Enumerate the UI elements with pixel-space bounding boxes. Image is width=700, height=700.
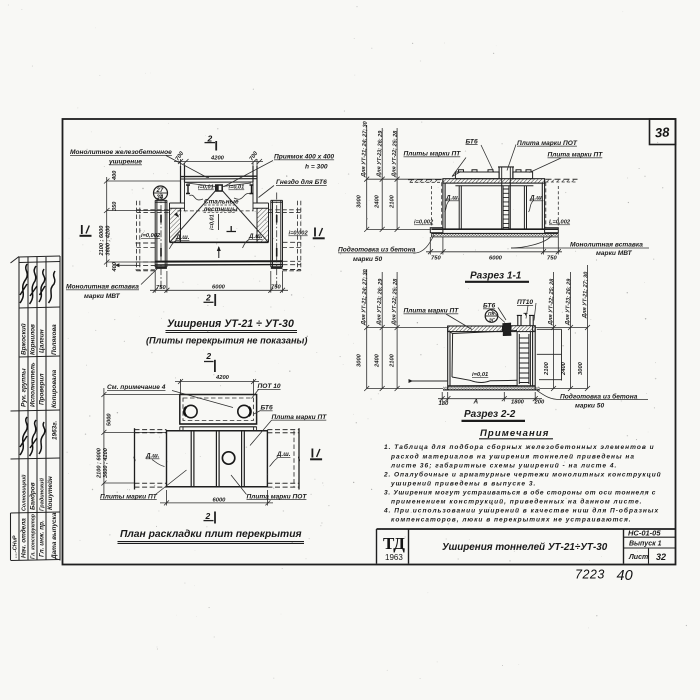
svg-text:2100: 2100 xyxy=(390,194,396,209)
svg-text:ПОТ 10: ПОТ 10 xyxy=(258,383,281,390)
svg-text:Монолитная вставка: Монолитная вставка xyxy=(570,242,643,249)
svg-text:Д.ш.: Д.ш. xyxy=(145,453,160,460)
svg-text:Лист: Лист xyxy=(628,554,648,561)
svg-text:марки 50: марки 50 xyxy=(575,403,604,410)
svg-text:Вржоский: Вржоский xyxy=(20,323,28,355)
svg-text:400: 400 xyxy=(112,261,118,272)
svg-text:1963: 1963 xyxy=(385,553,403,562)
svg-text:См. примечание 4: См. примечание 4 xyxy=(107,384,166,391)
svg-text:Солновицкий: Солновицкий xyxy=(21,474,28,511)
svg-text:Рук. группы: Рук. группы xyxy=(21,368,28,407)
svg-text:2: 2 xyxy=(205,293,211,303)
svg-text:ПТ10: ПТ10 xyxy=(517,299,533,306)
svg-text:350: 350 xyxy=(112,201,118,211)
svg-text:Д.ш.: Д.ш. xyxy=(445,195,460,202)
svg-text:4200: 4200 xyxy=(215,375,230,381)
svg-text:2100: 2100 xyxy=(390,353,396,368)
svg-text:НС-01-05: НС-01-05 xyxy=(628,529,661,538)
svg-text:Полякова: Полякова xyxy=(51,324,58,355)
svg-text:Разрез 1-1: Разрез 1-1 xyxy=(470,271,522,282)
svg-text:2400: 2400 xyxy=(561,361,567,376)
svg-text:38: 38 xyxy=(654,124,670,140)
svg-text:750: 750 xyxy=(271,285,281,291)
svg-text:Проверил: Проверил xyxy=(39,374,46,405)
svg-text:ПК: ПК xyxy=(488,311,495,317)
svg-text:2: 2 xyxy=(207,134,213,144)
svg-text:Копировала: Копировала xyxy=(51,369,58,408)
svg-text:3000: 3000 xyxy=(578,361,584,375)
svg-text:уширение: уширение xyxy=(108,159,142,166)
svg-text:i=0,002: i=0,002 xyxy=(141,233,161,239)
svg-text:компенсаторов, люки в перек: компенсаторов, люки в перекрытиях не уст… xyxy=(391,517,632,524)
svg-text:Приямок 400 х 400: Приямок 400 х 400 xyxy=(274,154,334,161)
svg-text:4. При использовании уширени: 4. При использовании уширений в качестве… xyxy=(383,507,659,515)
svg-text:Плита марки ПТ: Плита марки ПТ xyxy=(404,308,460,315)
svg-text:2400: 2400 xyxy=(375,194,381,209)
svg-text:32: 32 xyxy=(656,552,666,562)
svg-text:Д.ш.: Д.ш. xyxy=(529,195,544,202)
svg-text:марки МВТ: марки МВТ xyxy=(84,293,121,300)
svg-text:7223: 7223 xyxy=(575,568,605,582)
svg-text:Гл. конструктор: Гл. конструктор xyxy=(31,514,37,559)
svg-text:Плита марки ПОТ: Плита марки ПОТ xyxy=(247,493,308,500)
svg-text:марки 50: марки 50 xyxy=(353,256,382,263)
svg-text:Разрез 2-2: Разрез 2-2 xyxy=(464,409,516,420)
svg-text:применением конструкций, при: применением конструкций, приведенных на … xyxy=(391,498,642,506)
svg-text:БТ6: БТ6 xyxy=(466,138,478,145)
svg-text:листе 36; габаритные схемы: листе 36; габаритные схемы уширений - на… xyxy=(390,462,617,470)
svg-text:40: 40 xyxy=(617,568,633,584)
svg-text:Цалгин: Цалгин xyxy=(39,329,46,353)
svg-text:ТД: ТД xyxy=(383,534,405,553)
svg-text:180: 180 xyxy=(439,401,449,407)
svg-text:Плита марки ПТ: Плита марки ПТ xyxy=(272,414,328,421)
svg-text:6000: 6000 xyxy=(212,285,226,291)
svg-text:Плита марки ПТ: Плита марки ПТ xyxy=(548,152,604,159)
svg-text:Д.ш.: Д.ш. xyxy=(276,451,291,458)
svg-text:3600 ; 4200: 3600 ; 4200 xyxy=(106,225,112,256)
svg-text:БТ6: БТ6 xyxy=(483,303,495,310)
svg-text:5000: 5000 xyxy=(107,413,113,426)
svg-text:750: 750 xyxy=(431,256,441,262)
svg-text:3000: 3000 xyxy=(357,194,363,208)
svg-text:А: А xyxy=(473,399,479,406)
svg-text:марки МВТ: марки МВТ xyxy=(596,250,633,257)
svg-text:Плиты марки ПТ: Плиты марки ПТ xyxy=(100,493,158,500)
svg-text:Корнилов: Корнилов xyxy=(30,324,37,355)
svg-text:2: 2 xyxy=(205,351,211,361)
svg-text:Д.ш.: Д.ш. xyxy=(175,234,190,241)
svg-text:2100 ; 6000: 2100 ; 6000 xyxy=(97,447,103,479)
svg-text:400: 400 xyxy=(112,170,118,181)
svg-text:i=0,002: i=0,002 xyxy=(414,220,434,226)
svg-text:БТ6: БТ6 xyxy=(261,405,273,412)
svg-text:3000: 3000 xyxy=(357,353,363,367)
svg-text:6000: 6000 xyxy=(213,497,227,503)
svg-text:1800: 1800 xyxy=(511,400,525,406)
svg-text:(Плиты перекрытия не показа: (Плиты перекрытия не показаны) xyxy=(146,336,307,346)
svg-text:1. Таблица для подбора сбор: 1. Таблица для подбора сборных железобет… xyxy=(384,443,655,451)
svg-text:Подготовка из бетона: Подготовка из бетона xyxy=(338,246,416,254)
svg-text:расход материалов на уширен: расход материалов на уширения тоннелей п… xyxy=(390,453,635,461)
svg-text:3. Уширения могут устраивать: 3. Уширения могут устраиваться в обе сто… xyxy=(384,489,656,497)
svg-text:2100: 2100 xyxy=(544,361,550,376)
svg-text:750: 750 xyxy=(156,285,166,291)
svg-text:i=0,01: i=0,01 xyxy=(472,372,488,378)
svg-text:Гл. инж. пр.: Гл. инж. пр. xyxy=(39,520,46,557)
svg-text:Монолитное железобетонное: Монолитное железобетонное xyxy=(70,148,172,156)
svg-text:Дата выпуска: Дата выпуска xyxy=(51,512,58,560)
svg-text:200: 200 xyxy=(534,400,545,406)
svg-text:2100 ; 6000: 2100 ; 6000 xyxy=(99,225,105,257)
svg-text:2: 2 xyxy=(205,511,211,521)
svg-text:Плиты марки ПТ: Плиты марки ПТ xyxy=(404,151,462,158)
svg-text:Уширения УТ-21 ÷ УТ-30: Уширения УТ-21 ÷ УТ-30 xyxy=(167,318,294,330)
svg-text:27: 27 xyxy=(156,188,164,194)
svg-text:....-СНиР: ....-СНиР xyxy=(13,535,19,558)
svg-text:i=0,002: i=0,002 xyxy=(289,231,309,237)
svg-text:4200: 4200 xyxy=(210,156,225,162)
svg-text:Нач. отдела: Нач. отдела xyxy=(20,518,28,558)
svg-text:ЗГ: ЗГ xyxy=(489,318,496,324)
svg-text:34: 34 xyxy=(157,195,164,201)
svg-text:Исполнитель: Исполнитель xyxy=(30,362,37,407)
svg-text:1963г.: 1963г. xyxy=(52,420,59,440)
svg-text:Уширения тоннелей УТ-21÷УТ-3: Уширения тоннелей УТ-21÷УТ-30 xyxy=(442,542,608,553)
svg-text:Стальные: Стальные xyxy=(204,199,239,206)
svg-text:Кошутейн: Кошутейн xyxy=(46,476,54,510)
svg-text:Бандров: Бандров xyxy=(29,482,37,510)
svg-text:Градинский: Градинский xyxy=(39,478,46,511)
svg-text:h = 300: h = 300 xyxy=(305,164,328,171)
svg-text:Плита марки ПОТ: Плита марки ПОТ xyxy=(517,140,578,147)
svg-text:План раскладки плит перекры: План раскладки плит перекрытия xyxy=(120,529,302,540)
svg-text:Выпуск 1: Выпуск 1 xyxy=(629,541,662,548)
svg-text:6000: 6000 xyxy=(489,256,503,262)
svg-text:Примечания: Примечания xyxy=(480,428,549,439)
svg-text:лестницы: лестницы xyxy=(203,206,239,213)
svg-text:750: 750 xyxy=(547,256,557,262)
svg-text:2400: 2400 xyxy=(375,353,381,368)
svg-text:Монолитная вставка: Монолитная вставка xyxy=(66,284,139,291)
svg-text:Гнездо для БТ6: Гнездо для БТ6 xyxy=(276,178,327,186)
svg-text:2. Опалубочные и арматурные: 2. Опалубочные и арматурные чертежи моно… xyxy=(383,471,662,479)
svg-text:уширений приведены в выпуск: уширений приведены в выпуске 3. xyxy=(390,480,536,488)
svg-text:i=0,01: i=0,01 xyxy=(210,214,216,230)
svg-text:3600 ; 4200: 3600 ; 4200 xyxy=(103,447,109,478)
svg-text:Д.ш.: Д.ш. xyxy=(248,233,263,240)
svg-text:L=0,002: L=0,002 xyxy=(549,220,571,226)
